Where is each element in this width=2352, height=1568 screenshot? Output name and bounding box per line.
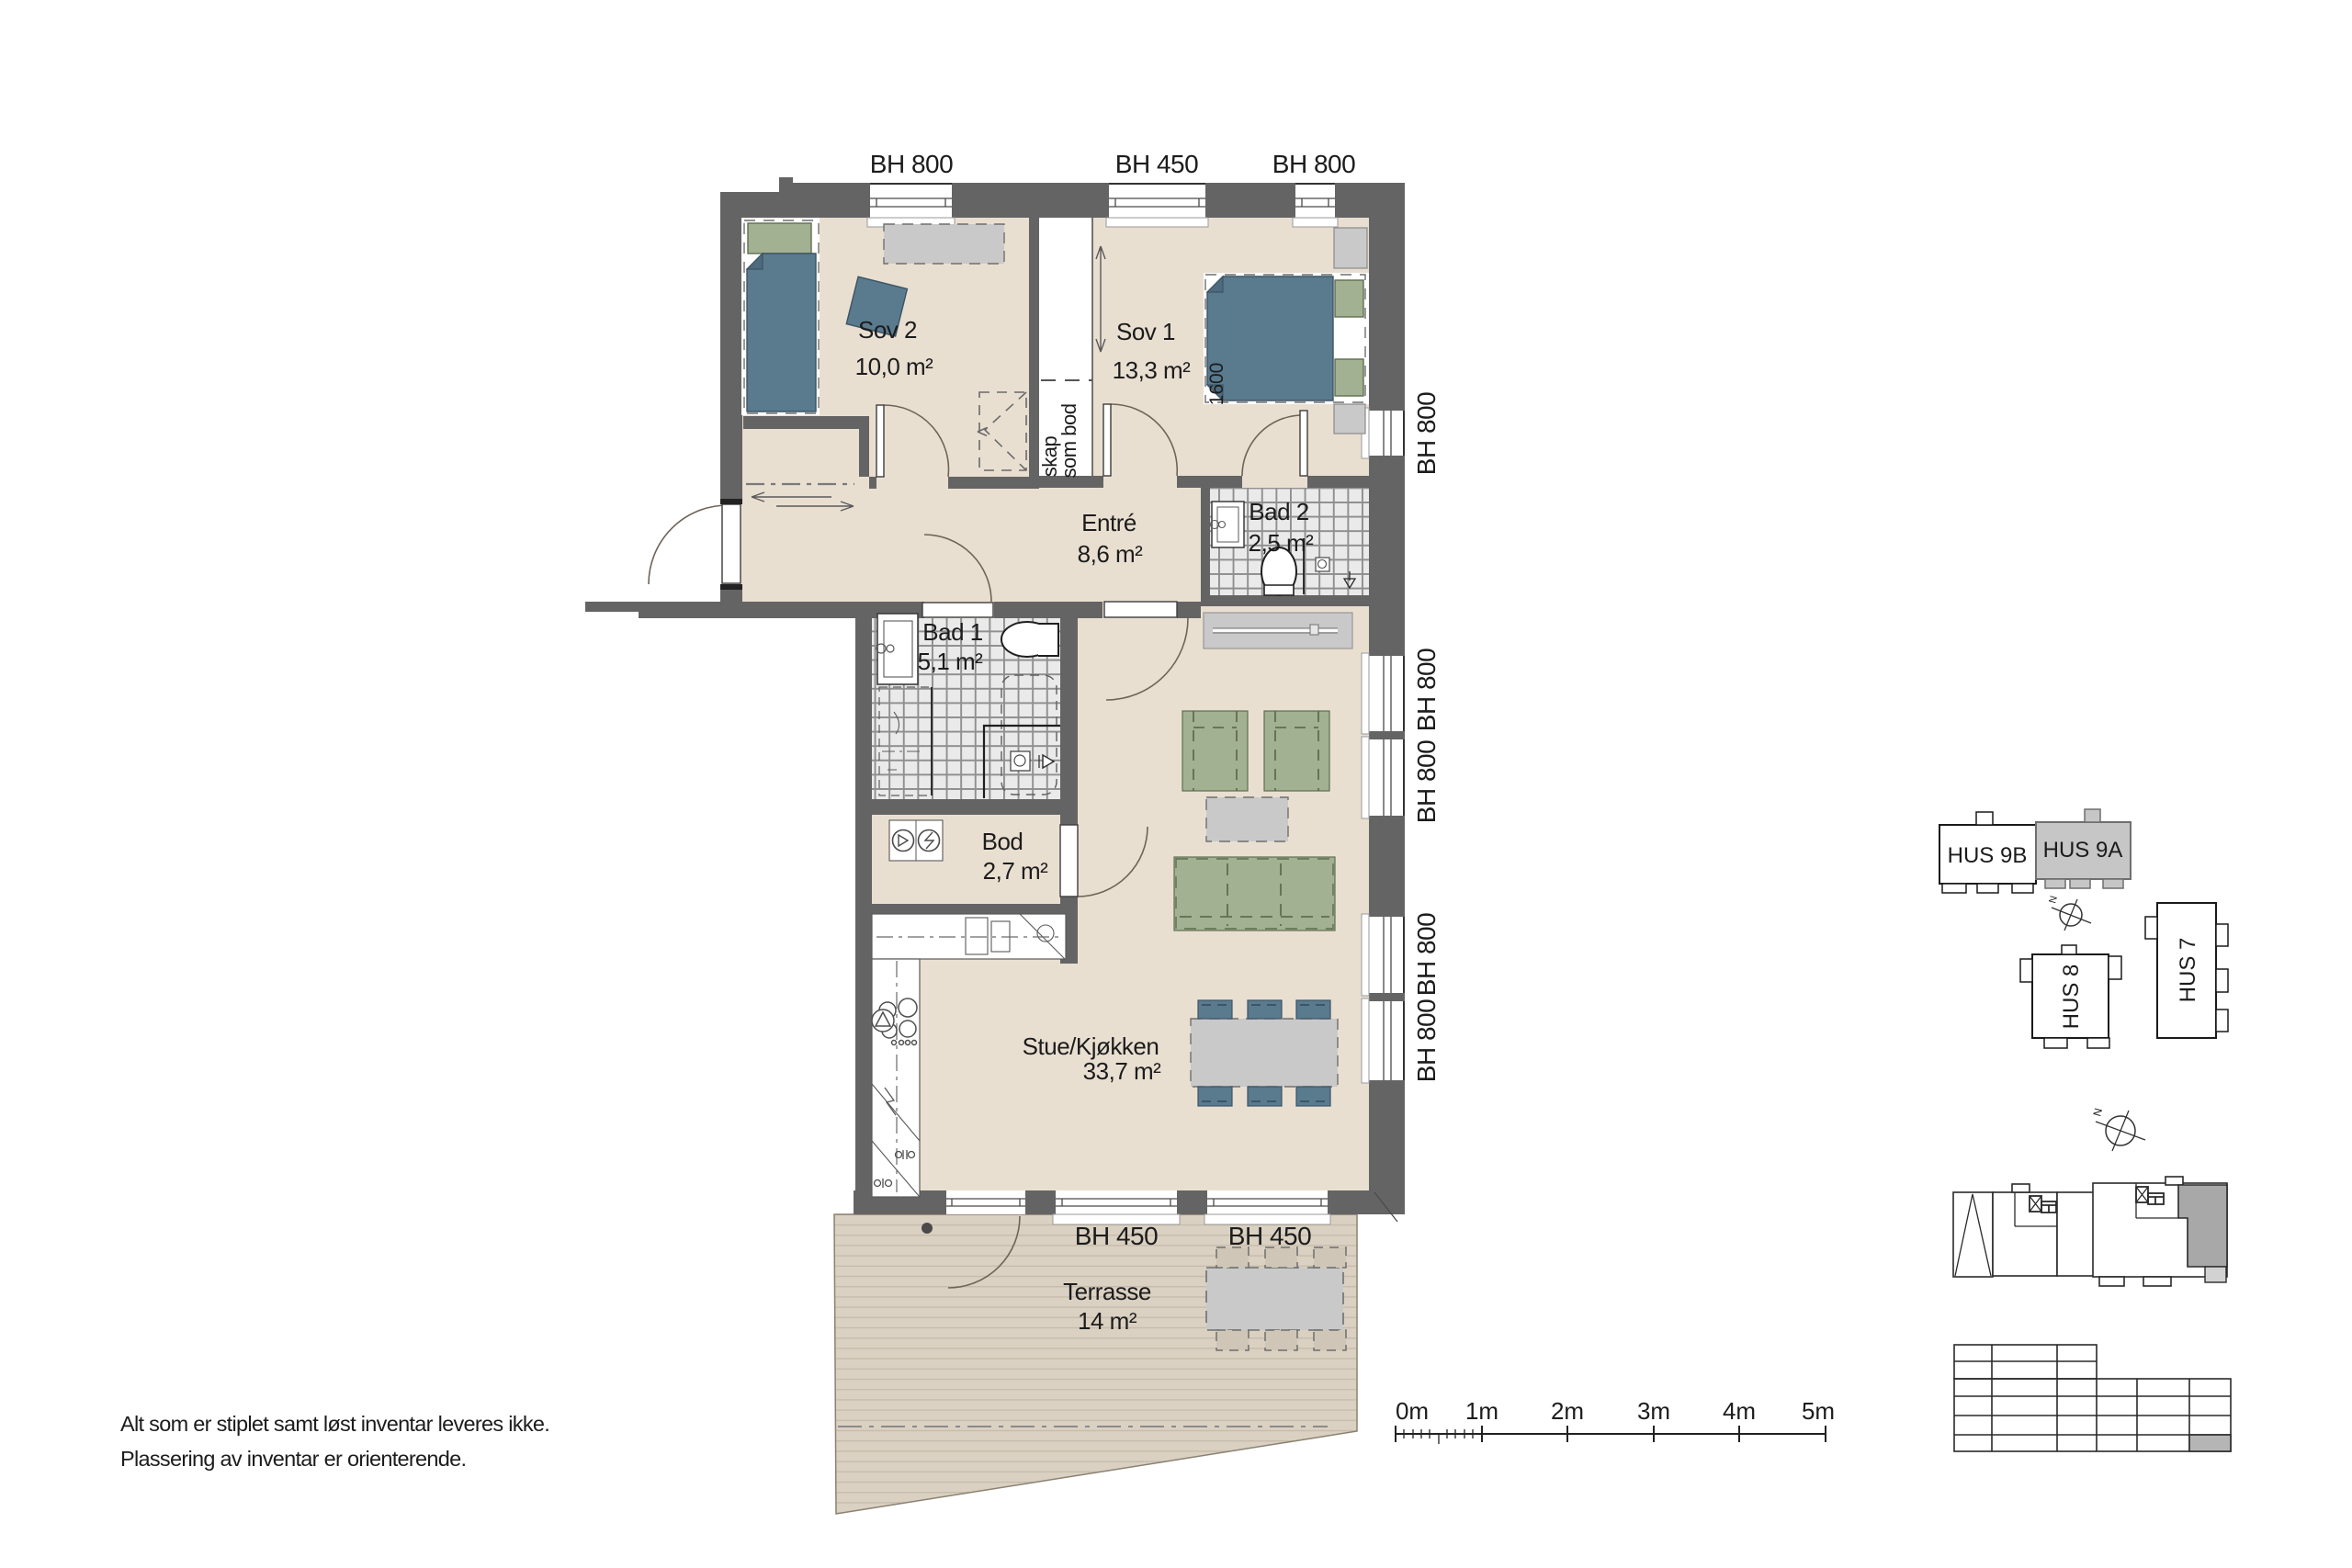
svg-text:1600: 1600 — [1206, 363, 1227, 406]
svg-text:som bod: som bod — [1057, 404, 1080, 479]
svg-text:14 m²: 14 m² — [1078, 1307, 1137, 1335]
svg-text:33,7 m²: 33,7 m² — [1083, 1057, 1161, 1085]
svg-text:Terrasse: Terrasse — [1063, 1278, 1151, 1305]
svg-text:10,0 m²: 10,0 m² — [855, 353, 933, 380]
svg-text:Alt som er stiplet samt løst i: Alt som er stiplet samt løst inventar le… — [120, 1412, 549, 1436]
svg-text:0m: 0m — [1396, 1397, 1429, 1425]
svg-text:2,7 m²: 2,7 m² — [983, 857, 1049, 885]
svg-text:2,5 m²: 2,5 m² — [1249, 529, 1315, 557]
svg-text:Plassering av inventar er orie: Plassering av inventar er orienterende. — [120, 1447, 466, 1471]
svg-text:Sov 2: Sov 2 — [858, 316, 917, 344]
svg-text:BH 450: BH 450 — [1228, 1222, 1311, 1250]
svg-text:Entré: Entré — [1081, 509, 1136, 536]
svg-text:8,6 m²: 8,6 m² — [1078, 540, 1144, 568]
svg-text:4m: 4m — [1723, 1397, 1756, 1425]
svg-text:13,3 m²: 13,3 m² — [1113, 356, 1191, 384]
svg-text:HUS 9B: HUS 9B — [1948, 843, 2028, 868]
svg-text:N: N — [2090, 1107, 2105, 1118]
svg-text:3m: 3m — [1637, 1397, 1670, 1425]
svg-text:BH 800: BH 800 — [1272, 150, 1355, 178]
svg-text:5,1 m²: 5,1 m² — [918, 648, 984, 675]
svg-text:BH 800: BH 800 — [1412, 649, 1441, 731]
svg-text:HUS 9A: HUS 9A — [2043, 838, 2123, 863]
svg-text:2m: 2m — [1551, 1397, 1584, 1425]
svg-text:BH 800: BH 800 — [1412, 913, 1441, 996]
svg-text:BH 450: BH 450 — [1115, 150, 1198, 178]
svg-text:BH 800: BH 800 — [1412, 392, 1441, 475]
svg-text:Stue/Kjøkken: Stue/Kjøkken — [1023, 1032, 1159, 1060]
svg-text:BH 800: BH 800 — [1412, 999, 1441, 1082]
svg-text:N: N — [2047, 895, 2060, 905]
svg-text:Bad 1: Bad 1 — [922, 618, 982, 646]
svg-text:HUS 8: HUS 8 — [2059, 964, 2084, 1030]
svg-text:HUS 7: HUS 7 — [2176, 938, 2200, 1003]
svg-text:BH 800: BH 800 — [870, 150, 953, 178]
svg-text:Bod: Bod — [982, 828, 1023, 855]
svg-text:Bad 2: Bad 2 — [1249, 498, 1308, 525]
svg-text:BH 450: BH 450 — [1075, 1222, 1158, 1250]
svg-text:Sov 1: Sov 1 — [1116, 318, 1175, 345]
svg-text:1m: 1m — [1465, 1397, 1498, 1425]
svg-text:BH 800: BH 800 — [1412, 740, 1441, 823]
svg-text:5m: 5m — [1802, 1397, 1835, 1425]
